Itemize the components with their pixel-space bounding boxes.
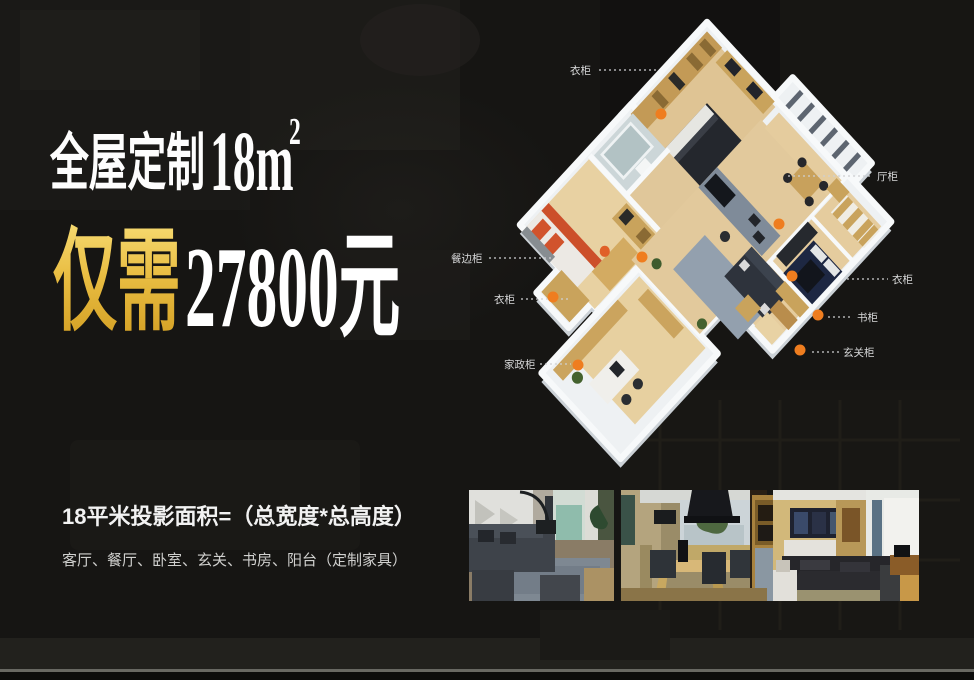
svg-text:全屋定制: 全屋定制 [49,128,205,198]
svg-text:玄关柜: 玄关柜 [843,346,875,359]
svg-text:衣柜: 衣柜 [892,273,913,286]
svg-text:客厅、餐厅、卧室、玄关、书房、阳台（定制家具）: 客厅、餐厅、卧室、玄关、书房、阳台（定制家具） [62,552,407,569]
svg-text:家政柜: 家政柜 [504,358,536,371]
svg-text:2: 2 [289,110,301,152]
svg-text:衣柜: 衣柜 [494,293,515,306]
svg-text:厅柜: 厅柜 [877,170,898,183]
svg-text:18m: 18m [210,114,294,209]
svg-text:衣柜: 衣柜 [570,64,591,77]
svg-text:餐边柜: 餐边柜 [451,252,483,265]
svg-text:书柜: 书柜 [857,311,878,324]
svg-text:18平米投影面积=（总宽度*总高度）: 18平米投影面积=（总宽度*总高度） [62,504,416,529]
svg-text:仅需: 仅需 [53,219,181,344]
svg-text:27800元: 27800元 [185,224,400,353]
